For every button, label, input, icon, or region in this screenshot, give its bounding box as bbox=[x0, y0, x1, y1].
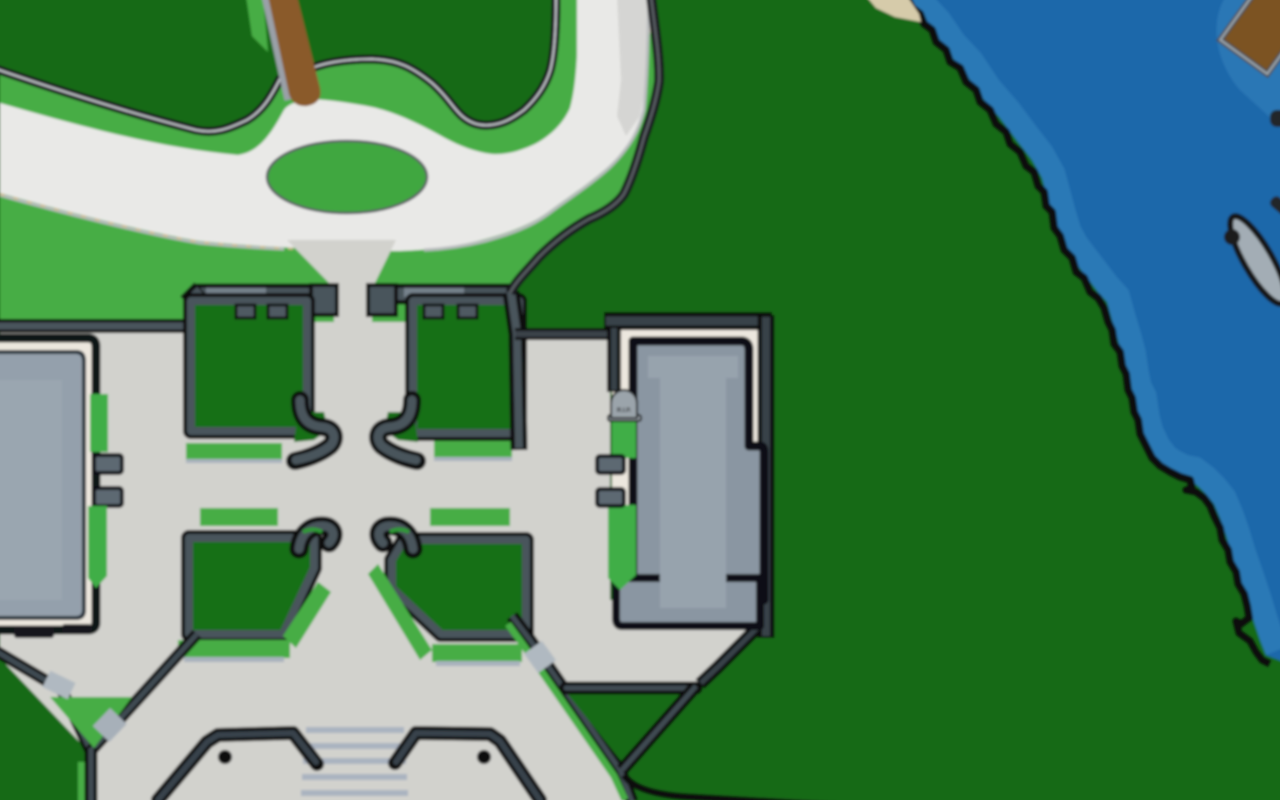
svg-text:R.I.P.: R.I.P. bbox=[617, 408, 632, 414]
